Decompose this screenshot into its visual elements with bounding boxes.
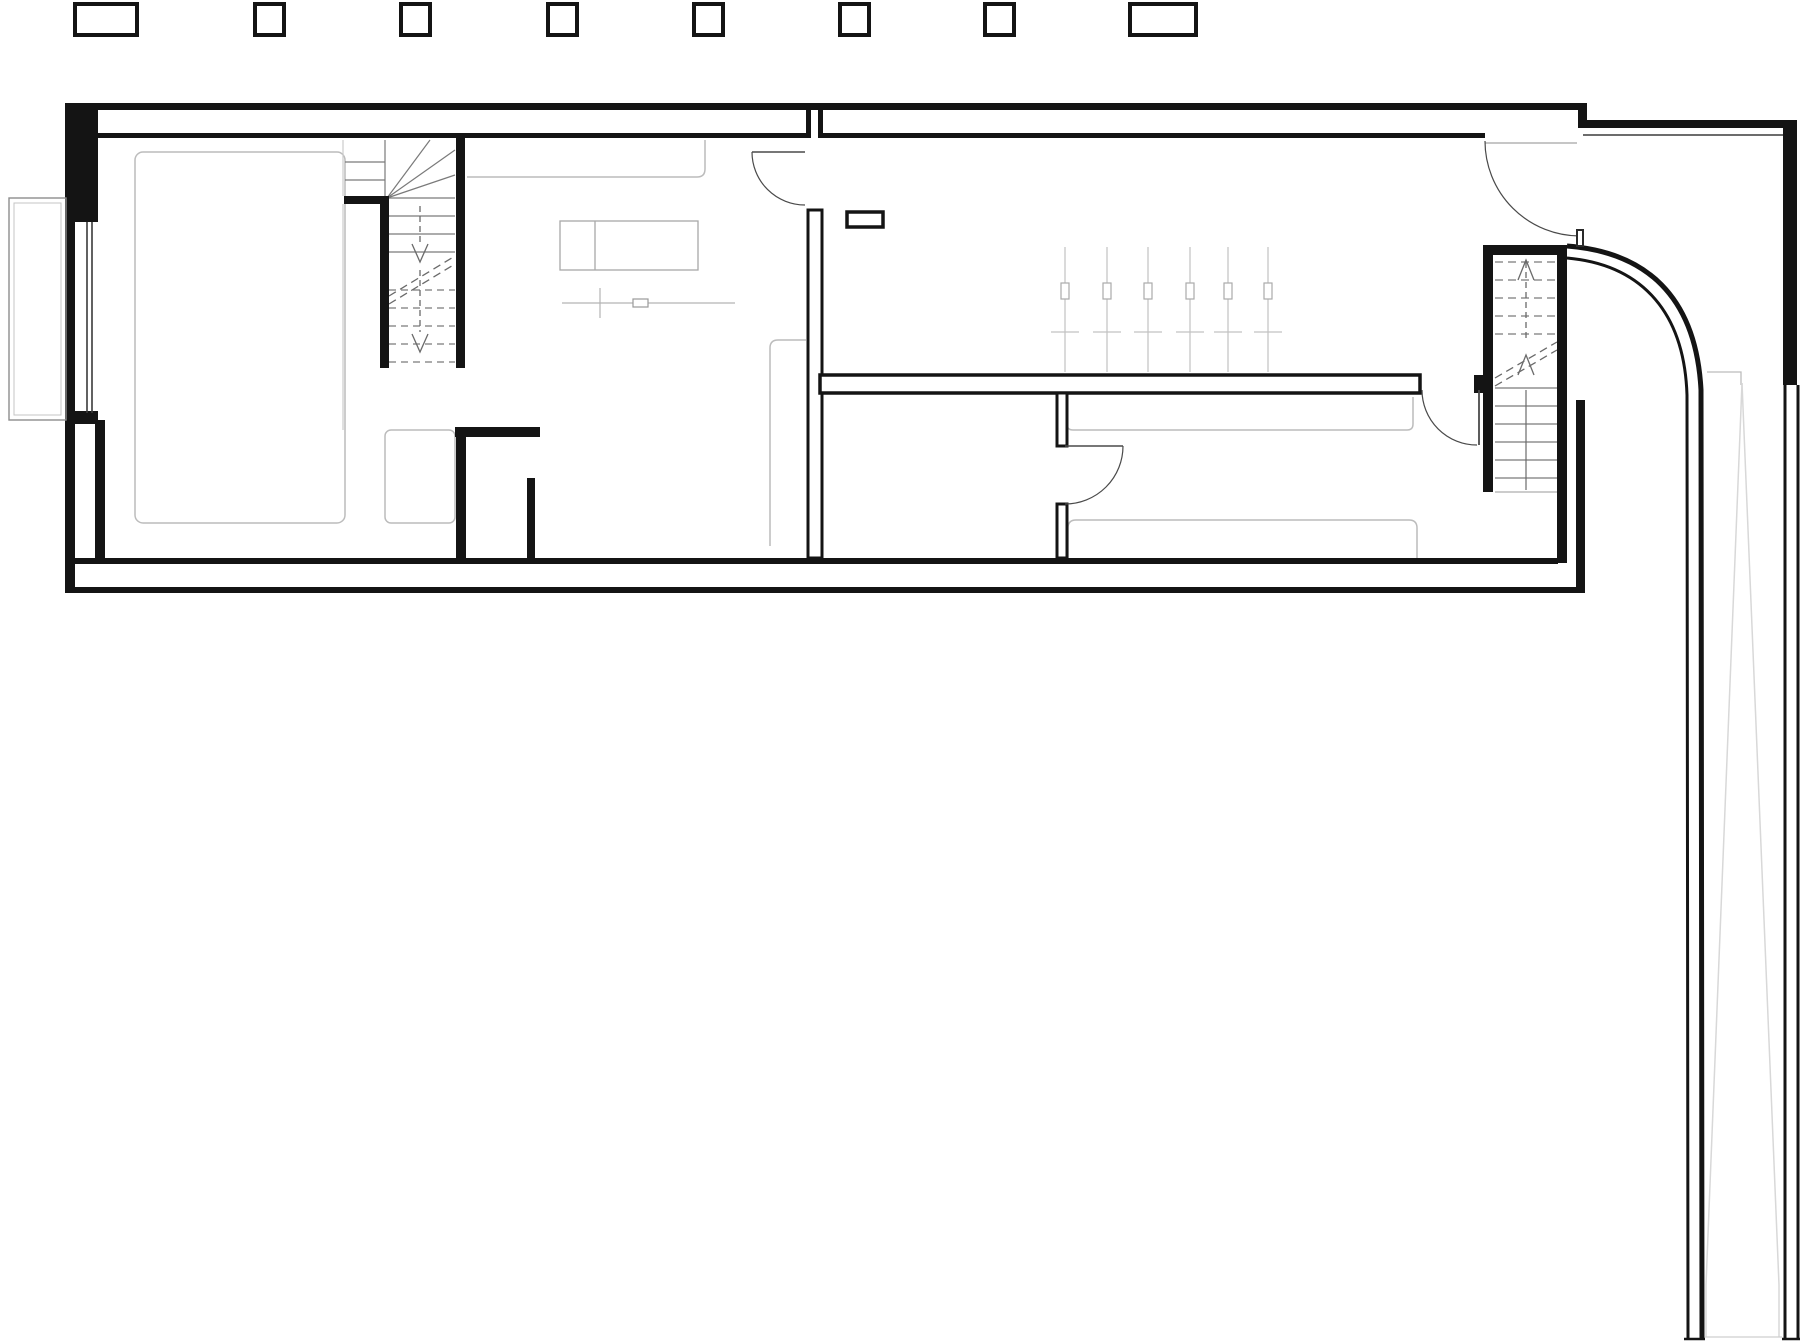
wall-fixture [847, 212, 883, 227]
floor-plan-page [0, 0, 1800, 1344]
stair-top-left-treads [345, 140, 455, 362]
stair-right-treads [1495, 260, 1557, 492]
floor-plan-drawing [0, 0, 1800, 1344]
wardrobe-rail-symbols [1051, 247, 1282, 372]
skylight-markers [75, 4, 1196, 35]
interior-walls [344, 135, 1567, 563]
curved-wall-and-path [1567, 246, 1800, 1339]
door-swings [752, 141, 1583, 504]
exterior-walls [9, 103, 1797, 593]
